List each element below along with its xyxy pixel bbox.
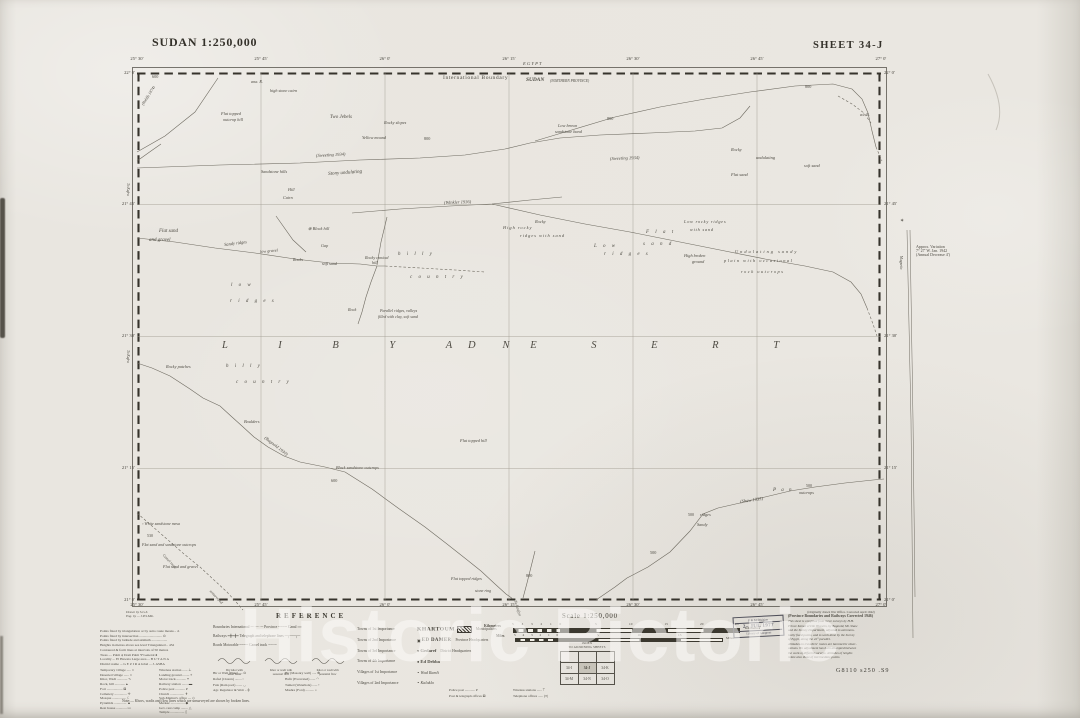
map-label: r i d g e s [604, 252, 650, 257]
map-label: (Winkler 1936) [444, 200, 471, 205]
map-label: 800 [424, 137, 430, 141]
map-label: plain with occasional [724, 259, 793, 263]
map-label: D E S E R T [468, 341, 805, 352]
unsurveyed-note: Note:— Khors, wadis and flow lines which… [122, 700, 250, 704]
graticule-label: 26° 30′ [626, 57, 639, 62]
map-label: outcrops [799, 491, 814, 495]
well-entry: Agr. Regulator & Weir .. ╪ [213, 688, 279, 694]
paper-crease [988, 74, 1000, 130]
graticule-label: 26° 15′ [502, 57, 515, 62]
town-example-name: Kalakla [421, 680, 434, 685]
map-label: SUDAN [526, 78, 544, 83]
scan-edge-artifact-2 [0, 636, 3, 714]
well-entry: Mashra (Ford) .......... = [285, 688, 351, 694]
map-label: ▫ White sandstone mesa [142, 522, 180, 526]
reference-posts-left: Police post ............ PPost & telegra… [449, 687, 486, 699]
graticule-label: 21° 15′ [122, 466, 135, 471]
reference-posts-right: Wireless stations ...... ⍑Telephone offi… [513, 687, 548, 699]
map-label: soft sand [322, 262, 337, 266]
graticule-label: 21° 15′ [884, 466, 897, 471]
sheet-series-title: SUDAN 1:250,000 [152, 36, 257, 48]
map-label: Flat sand [731, 173, 748, 177]
map-label: 800 [805, 85, 811, 89]
map-label: Hill [288, 188, 295, 192]
graticule-label: 21° 30′ [122, 334, 135, 339]
map-label: Black sandstone outcrops [336, 466, 379, 470]
legend-line: Temple ................ ▯ [159, 710, 212, 715]
map-label: l o w [231, 283, 253, 288]
map-label: hill [372, 261, 378, 265]
map-label: Parallel ridges, valleys [380, 309, 417, 313]
map-label: High broken [684, 254, 705, 258]
map-label: Rocks [293, 258, 303, 262]
map-label: (NORTHERN PROVINCE) [550, 80, 589, 84]
classification-number: G8110 s250 .S9 [836, 668, 889, 674]
map-label: ⊕ Block hill [308, 227, 329, 231]
credit-line2: Eng. by — J.P.S.Mtn. [126, 614, 154, 618]
map-label: 800 [526, 574, 532, 578]
map-label: Rocky [535, 220, 546, 224]
map-label: Sandstone hills [261, 170, 287, 174]
map-label: c o u n t r y [410, 275, 465, 280]
map-label: 500 [688, 513, 694, 517]
legend-line: District name ... G E Z I R A Jebel ... … [100, 662, 212, 667]
map-label: 800 [607, 117, 613, 121]
historic-pictoric-watermark: Historic Pictoric [240, 592, 840, 679]
graticule-label: 27° 0′ [876, 603, 887, 608]
map-label: Sandy [697, 523, 708, 527]
post-entry: Post & telegraph offices ⊠ [449, 693, 486, 699]
magnetic-variation-line [907, 230, 913, 638]
map-label: Rocky slopes [384, 121, 406, 125]
map-label: 600 [152, 75, 158, 79]
map-label: a/c R. [860, 113, 870, 117]
map-label: sandstone band [555, 130, 582, 134]
map-label: 500 [806, 484, 812, 488]
map-label: Gap [321, 244, 328, 248]
map-label: rock outcrops [741, 270, 784, 274]
map-label: r i d g e s [230, 299, 276, 304]
map-label: International Boundary [443, 76, 508, 82]
map-label: undulating [756, 156, 775, 160]
map-label: Flat topped ridges [451, 577, 482, 581]
map-label: with sand [690, 228, 714, 232]
graticule-label: 22° 0′ [884, 71, 895, 76]
map-label: Flat sand and gravel [163, 565, 198, 569]
town-class-label: Villages of 2nd Importance [357, 681, 417, 685]
map-label: Flat sand [159, 229, 178, 234]
map-label: Flat topped [221, 112, 241, 116]
post-entry: Telephone offices ...... (T) [513, 693, 548, 699]
graticule-label: 25° 45′ [254, 57, 267, 62]
map-label: high stone cairn [270, 89, 297, 93]
map-label: Yellow mound [362, 136, 386, 140]
graticule-label: 25° 30′ [130, 57, 143, 62]
map-label: outcrop hill [223, 118, 243, 122]
graticule-label: 25° 30′ [130, 603, 143, 608]
graticule-label: 21° 45′ [122, 202, 135, 207]
neatline-outer [133, 68, 887, 607]
map-label: h i l l y [226, 364, 262, 369]
map-label: P a n [773, 488, 793, 493]
magnetic-line3: (Annual Decrease 4′) [916, 253, 950, 257]
map-label: ridges with sand [520, 234, 565, 238]
map-label: ground [692, 260, 704, 264]
map-label: soft sand [804, 164, 820, 168]
map-label: L o w [594, 244, 618, 249]
graticule-lines [137, 73, 881, 600]
graticule-label: 21° 0′ [124, 598, 135, 603]
map-label: To Kufra [125, 183, 129, 196]
graticule-label: 21° 30′ [884, 334, 897, 339]
marginalia-legend-left: Temporary village ..... ⌂Deserted villag… [100, 668, 158, 710]
drawing-credits: Drawn by S.G.S. Eng. by — J.P.S.Mtn. [126, 610, 154, 618]
map-label: Two Jebels [330, 115, 352, 120]
map-label: c o u n t r y [236, 380, 291, 385]
map-label: F l a t [646, 230, 676, 235]
map-label: Low rocky ridges [684, 220, 726, 224]
graticule-label: 26° 45′ [750, 57, 763, 62]
map-label: Flat topped hill [460, 439, 487, 443]
graticule-label: 21° 0′ [884, 598, 895, 603]
magnetic-variation-note: Approx. Variation 7° 27′ W. Jan. 1942 (A… [916, 245, 950, 257]
magnetic-axis-label: Magnetic [898, 256, 902, 270]
scan-edge-artifact [0, 198, 5, 338]
map-label: filled with clay, soft sand [378, 315, 418, 319]
graticule-label: 27° 0′ [876, 57, 887, 62]
map-label: Low brown [558, 124, 577, 128]
map-label: Undulating sandy [735, 250, 798, 254]
graticule-label: 22° 0′ [124, 71, 135, 76]
graticule-label: 21° 45′ [884, 202, 897, 207]
map-label: High rocky [503, 226, 532, 230]
marginalia-legend-right: Wireless station ...... ⊥Landing ground … [159, 668, 212, 715]
map-label: and gravel [149, 238, 171, 243]
map-label: Flat sand and sandstone outcrops [142, 543, 196, 547]
map-label: Rock [348, 308, 356, 312]
marginalia-legend-top: Points fixed by triangulation or by astr… [100, 629, 212, 667]
map-label: Cairn [283, 196, 293, 200]
map-label: Boulders [244, 420, 260, 424]
map-sheet-scan: SUDAN 1:250,000 SHEET 34-J 25° 30′25° 45… [0, 0, 1080, 718]
map-label: Rocky patches [166, 365, 191, 369]
map-label: s a n d [643, 242, 674, 247]
magnetic-star-icon: ✶ [900, 219, 904, 224]
graticule-label: 26° 0′ [380, 57, 391, 62]
map-label: E G Y P T [523, 62, 542, 67]
map-label: To Kufra [125, 350, 129, 363]
sheet-number-title: SHEET 34-J [813, 41, 884, 52]
map-label: Rocky [731, 148, 742, 152]
legend-line: Rest house ............ ▭ [100, 706, 158, 711]
map-label: 600 [331, 479, 337, 483]
map-label: 530 [147, 534, 153, 538]
map-label: h i l l y [398, 252, 434, 257]
map-label: ridges [700, 513, 711, 517]
map-label: 500 [650, 551, 656, 555]
map-label: ana. R. [251, 80, 263, 84]
